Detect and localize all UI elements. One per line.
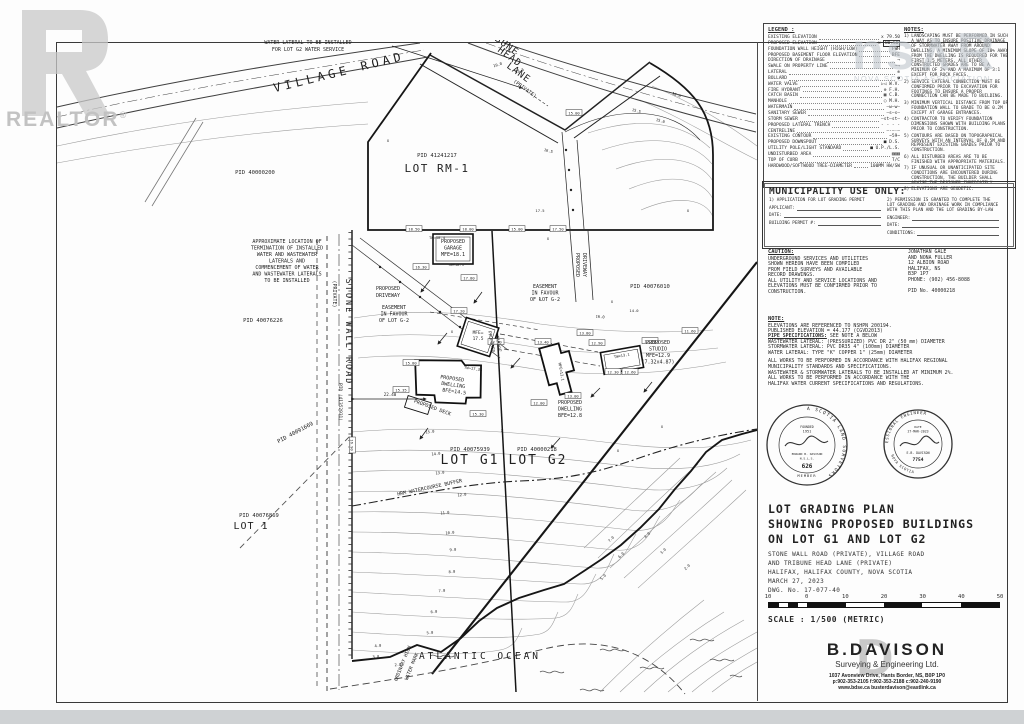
x-mark: x — [687, 208, 690, 213]
boxed-elevation: 12.00 — [531, 400, 547, 406]
boxed-elevation-value: 18.50 — [408, 227, 420, 232]
plan-label: ATLANTIC OCEAN — [419, 651, 541, 662]
plan-label: TW=18.4 — [429, 235, 446, 240]
drawing-subtitle-line: HALIFAX, HALIFAX COUNTY, NOVA SCOTIA — [768, 568, 1006, 577]
plan-label: PID 40076869 — [239, 513, 279, 519]
plan-label: STONE WALL ROAD — [343, 279, 353, 386]
firm-name: B.DAVISON — [768, 640, 1006, 660]
contour-label: 13.0 — [435, 470, 445, 476]
owner-line: PHONE: (902) 456-8088 — [908, 278, 1006, 284]
contour-label: 3.0 — [372, 654, 380, 660]
scale-tick-labels: 1001020304050 — [768, 594, 1000, 601]
plan-label: PROPOSED — [646, 340, 670, 346]
contour-label: 16.0 — [595, 314, 605, 320]
surveyor-founded: FOUNDED — [800, 425, 814, 429]
surveyor-member: MEMBER — [798, 474, 817, 478]
boxed-elevation: 13.80 — [577, 330, 593, 336]
plan-label: PID 40076010 — [630, 284, 670, 290]
plan-label: DRIVEWAY — [376, 293, 400, 299]
firm-web-email: www.bdse.ca busterdavison@eastlink.ca — [768, 685, 1006, 691]
x-mark: x — [611, 299, 614, 304]
plan-label: STUDIO — [649, 347, 667, 353]
boxed-elevation-value: 15.35 — [395, 388, 406, 393]
municipality-field: ENGINEER: — [887, 216, 999, 221]
plan-label: AND WASTEWATER LATERALS — [252, 272, 321, 278]
scale-tick: 40 — [958, 594, 965, 600]
notes-title: NOTES: — [904, 27, 1008, 33]
service-lateral-dots — [379, 149, 574, 343]
left-details — [145, 118, 352, 548]
municipality-title: MUNICIPALITY USE ONLY: — [769, 186, 1009, 197]
x-mark: x — [451, 329, 454, 334]
boxed-elevation: 18.00 — [460, 226, 476, 232]
contour-label: 5.0 — [426, 630, 434, 636]
surveyor-signature — [785, 436, 828, 446]
plan-label: MFE=18.1 — [441, 252, 465, 258]
boxed-elevation: 11.60 — [682, 328, 698, 334]
pipe-line: WATER LATERAL: TYPE "K" COPPER 1" (25mm)… — [768, 351, 1006, 357]
plan-label: PID 40091669 — [277, 421, 315, 445]
plan-label: DRIVEWAY — [581, 253, 587, 277]
plan-label: MFE=12.9 — [646, 353, 670, 359]
boxed-elevation-value: 15.80 — [405, 361, 417, 366]
plan-label: PROPOSED — [558, 400, 582, 406]
boxed-elevation: 15.00 — [566, 110, 582, 116]
contour-label: 2.0 — [683, 562, 692, 571]
boxed-elevation: 17.20 — [451, 308, 467, 314]
plan-label: PID 40000200 — [235, 170, 275, 176]
drawing-subtitle-line: AND TRIBUNE HEAD LANE (PRIVATE) — [768, 559, 1006, 568]
drawing-subtitle: STONE WALL ROAD (PRIVATE), VILLAGE ROADA… — [768, 550, 1006, 595]
boxed-elevation-value: 18.00 — [462, 227, 474, 232]
firm-tagline: Surveying & Engineering Ltd. — [768, 660, 1006, 669]
plan-label: (7.32x4.87) — [641, 360, 674, 366]
private-drive-v — [420, 55, 700, 229]
legend-notes-box: LEGEND : EXISTING ELEVATIONx 79.50PROPOS… — [763, 23, 1016, 188]
boxed-elevation: 12.90 — [589, 340, 605, 346]
plan-label: EASEMENT — [533, 284, 557, 290]
boxed-elevation: 12.60 — [622, 369, 638, 375]
boxed-elevation-value: 12.90 — [591, 341, 603, 346]
boxed-elevation: 16.90 — [349, 437, 355, 453]
engineer-name: E.B. DAVISON — [906, 451, 929, 455]
lot-rm1-boundary — [368, 53, 713, 230]
scale-tick: 30 — [919, 594, 926, 600]
scale-tick: 0 — [805, 594, 808, 600]
plan-label: COMMENCEMENT OF WATER — [255, 265, 319, 271]
boxed-elevation: 13.00 — [565, 393, 581, 399]
note-item: 6)ALL DISTURBED AREAS ARE TO BE FINISHED… — [904, 156, 1008, 166]
drawing-subtitle-line: STONE WALL ROAD (PRIVATE), VILLAGE ROAD — [768, 550, 1006, 559]
scale-tick: 50 — [997, 594, 1004, 600]
note-section: NOTE: ELEVATIONS ARE REFERENCED TO NSHPN… — [768, 316, 1006, 335]
municipality-field: CONDITIONS: — [887, 231, 999, 236]
plan-label: 17.5 — [473, 336, 484, 342]
caution-owner-section: CAUTION: UNDERGROUND SERVICES AND UTILIT… — [768, 249, 1006, 296]
boxed-elevation: 17.50 — [550, 226, 566, 232]
contour-label: 5.0 — [599, 572, 608, 581]
contour-label: 16.5 — [543, 147, 553, 154]
contour-label: 12.0 — [457, 492, 467, 498]
contour-label: 15.0 — [655, 117, 666, 124]
note-title: NOTE: — [768, 316, 1006, 322]
contour-label: 14.0 — [629, 308, 639, 313]
boxed-elevation-value: 16.90 — [349, 439, 354, 451]
contour-label: 6.0 — [617, 550, 626, 559]
professional-seals: THE ASSOCIATION OF NOVA SCOTIA LAND SURV… — [762, 400, 1008, 496]
engineer-date: 27-MAR-2023 — [907, 430, 928, 434]
contour-label: 15.0 — [425, 429, 435, 435]
legend-list: LEGEND : EXISTING ELEVATIONx 79.50PROPOS… — [768, 27, 900, 195]
boxed-elevation: 18.50 — [406, 226, 422, 232]
caution-line: CONSTRUCTION. — [768, 290, 908, 296]
municipality-use-only-box: MUNICIPALITY USE ONLY: 1) APPLICATION FO… — [762, 181, 1016, 249]
legend-title: LEGEND : — [768, 27, 900, 33]
plan-label: PROPOSED — [574, 253, 580, 277]
plan-label: WATER LATERAL TO BE INSTALLED — [264, 40, 351, 46]
plan-label: OF LOT G-2 — [379, 318, 409, 324]
contour-label: 19.0 — [492, 61, 503, 69]
plan-label: PID (41352931) — [337, 383, 343, 421]
plan-label: GARAGE — [444, 246, 462, 252]
contour-label: 18.0 — [671, 91, 682, 99]
municipality-field: BUILDING PERMIT #: — [769, 221, 881, 226]
contour-label: 7.0 — [438, 588, 446, 594]
x-mark: x — [547, 236, 550, 241]
drawing-subtitle-line: MARCH 27, 2023 — [768, 577, 1006, 586]
plan-label: LOT G2 — [509, 453, 568, 468]
boxed-elevation: 12.30 — [605, 369, 621, 375]
plan-label: PID 41241217 — [417, 153, 457, 159]
water-symbols — [430, 639, 742, 691]
x-mark: x — [617, 448, 620, 453]
contour-label: 6.0 — [430, 609, 438, 615]
plan-label: EASEMENT — [382, 305, 406, 311]
plan-label: DWELLING — [558, 407, 582, 413]
boxed-elevation: 16.30 — [413, 264, 429, 270]
note-item: 5)CONTOURS ARE BASED ON TOPOGRAPHICAL SU… — [904, 135, 1008, 155]
pipe-specifications-section: PIPE SPECIFICATIONS: SEE NOTE A BELOW WA… — [768, 334, 1006, 387]
boxed-elevation-value: 12.00 — [533, 401, 545, 406]
contour-label: 10.0 — [445, 530, 455, 536]
plan-label: 22.40 — [384, 392, 397, 397]
caution-block: CAUTION: UNDERGROUND SERVICES AND UTILIT… — [768, 249, 908, 296]
plan-label: IN FAVOUR — [380, 312, 408, 318]
boxed-elevation-value: 17.50 — [552, 227, 564, 232]
boxed-elevation: 15.30 — [470, 411, 486, 417]
boxed-elevation: 17.80 — [461, 275, 477, 281]
contour-label: 7.0 — [607, 534, 616, 543]
boxed-elevation-value: 15.00 — [568, 111, 580, 116]
boxed-elevation: 15.80 — [403, 360, 419, 366]
plan-label: LOT 1 — [233, 521, 268, 532]
boxed-elevation-value: 15.30 — [472, 412, 484, 417]
boxed-elevation-value: 12.60 — [624, 370, 636, 375]
plan-label: OF LOT G-2 — [530, 297, 560, 303]
boxed-elevation-value: 17.80 — [463, 276, 475, 281]
boxed-elevation-value: 13.80 — [579, 331, 591, 336]
legend-item: HARDWOOD/SOFTWOOD TREE-DIAMETER100MM HW/… — [768, 164, 900, 170]
plan-label: (PRIVATE) — [331, 280, 337, 307]
proposed-buildings — [404, 234, 644, 421]
contour-label: 3.0 — [659, 546, 668, 555]
plan-label: BFE=12.8 — [558, 413, 582, 419]
plan-label: APPROXIMATE LOCATION OF — [252, 239, 321, 245]
boxed-elevation-value: 16.30 — [415, 265, 427, 270]
note-item: 1)LANDSCAPING MUST BE PERFORMED IN SUCH … — [904, 35, 1008, 79]
scale-tick: 10 — [842, 594, 849, 600]
boxed-elevation-value: 17.20 — [453, 309, 465, 314]
surveyor-name: EDWARD B. DAVISON — [792, 452, 823, 456]
drawing-title-line2: SHOWING PROPOSED BUILDINGS — [768, 517, 1006, 532]
scale-label: SCALE : 1/500 (METRIC) — [768, 615, 1000, 624]
plan-label: PID 40076226 — [243, 318, 283, 324]
plan-label: TW=18.1 — [448, 262, 465, 267]
contour-label: 17.5 — [535, 208, 544, 213]
owner-pid: PID No. 40000218 — [908, 289, 1006, 295]
municipality-field: DATE: — [769, 213, 881, 218]
plan-label: LOT RM-1 — [405, 162, 470, 175]
scale-bar-graphic — [768, 602, 1000, 608]
lot-grading-plan-sheet: { "watermarks": { "realtor_word": "REALT… — [0, 0, 1024, 724]
municipality-field: APPLICANT: — [769, 206, 881, 211]
engineer-ring-top: REGISTERED PROFESSIONAL ENGINEER — [762, 400, 927, 443]
title-block: LOT GRADING PLAN SHOWING PROPOSED BUILDI… — [768, 502, 1006, 595]
drawing-title-line3: ON LOT G1 AND LOT G2 — [768, 532, 1006, 547]
scale-bar: 1001020304050 SCALE : 1/500 (METRIC) — [768, 594, 1000, 624]
scale-tick: 10 — [765, 594, 772, 600]
svg-text:REGISTERED PROFESSIONAL ENGINE: REGISTERED PROFESSIONAL ENGINEER — [762, 400, 927, 443]
contour-label: 8.0 — [448, 569, 456, 575]
boxed-elevation: 15.00 — [509, 226, 525, 232]
scale-tick: 20 — [881, 594, 888, 600]
engineer-number: 7754 — [912, 457, 923, 463]
plan-label: FOR LOT G2 WATER SERVICE — [272, 47, 344, 53]
panel-divider — [757, 42, 758, 701]
firm-block: D B.DAVISON Surveying & Engineering Ltd.… — [768, 632, 1006, 691]
municipality-col2-heading: 2) PERMISSION IS GRANTED TO COMPLETE THE… — [887, 198, 999, 213]
site-plan-drawing: 18.5018.0015.0017.5015.0016.3017.8017.20… — [55, 40, 757, 700]
owner-block: JONATHAN GALEAND NONA FULLER12 ALBION RO… — [908, 249, 1006, 296]
boxed-elevation-value: 15.00 — [511, 227, 523, 232]
contour-label: 11.0 — [440, 510, 450, 516]
pipe-para-line: HALIFAX WATER CURRENT SPECIFICATIONS AND… — [768, 382, 1006, 388]
page-edge — [0, 710, 1024, 724]
surveyor-number: 626 — [802, 463, 813, 470]
engineer-signature — [900, 436, 939, 446]
plan-label: IN FAVOUR — [531, 291, 559, 297]
plan-label: TO BE INSTALLED — [264, 278, 309, 284]
surveyor-year: 1951 — [803, 430, 812, 434]
municipality-col1-heading: 1) APPLICATION FOR LOT GRADING PERMIT — [769, 198, 881, 203]
plan-label: LOT G1 — [441, 453, 500, 468]
note-item: 4)CONTRACTOR TO VERIFY FOUNDATION DIMENS… — [904, 118, 1008, 133]
notes-list: NOTES: 1)LANDSCAPING MUST BE PERFORMED I… — [904, 27, 1008, 195]
contour-label: 4.0 — [374, 643, 382, 649]
contour-label: 9.0 — [449, 547, 457, 553]
caution-title: CAUTION: — [768, 249, 908, 255]
plan-label: LATERALS AND — [269, 259, 305, 265]
municipality-field: DATE: — [887, 223, 999, 228]
x-mark: x — [661, 424, 664, 429]
plan-label: TERMINATION OF INSTALLED — [251, 246, 323, 252]
boxed-elevation-value: 13.00 — [567, 394, 579, 399]
boxed-elevation-value: 11.60 — [684, 329, 696, 334]
plan-label: WATER AND WASTEWATER — [257, 252, 318, 258]
plan-label: MFE= — [473, 330, 484, 336]
municipality-col2: 2) PERMISSION IS GRANTED TO COMPLETE THE… — [887, 198, 999, 236]
municipality-col1: 1) APPLICATION FOR LOT GRADING PERMIT AP… — [769, 198, 881, 236]
engineer-date-label: DATE — [914, 425, 921, 429]
boxed-elevation: 13.40 — [535, 339, 551, 345]
surveyor-designation: N.S.L.S. — [800, 457, 815, 461]
plan-label: PROPOSED — [376, 286, 400, 292]
note-item: 2)SERVICE LATERAL CONNECTION MUST BE CON… — [904, 81, 1008, 101]
note-item: 3)MINIMUM VERTICAL DISTANCE FROM TOP OF … — [904, 102, 1008, 117]
boxed-elevation-value: 13.40 — [537, 340, 549, 345]
boxed-elevation-value: 12.30 — [607, 370, 619, 375]
drawing-title-line1: LOT GRADING PLAN — [768, 502, 1006, 517]
x-mark: x — [387, 138, 390, 143]
